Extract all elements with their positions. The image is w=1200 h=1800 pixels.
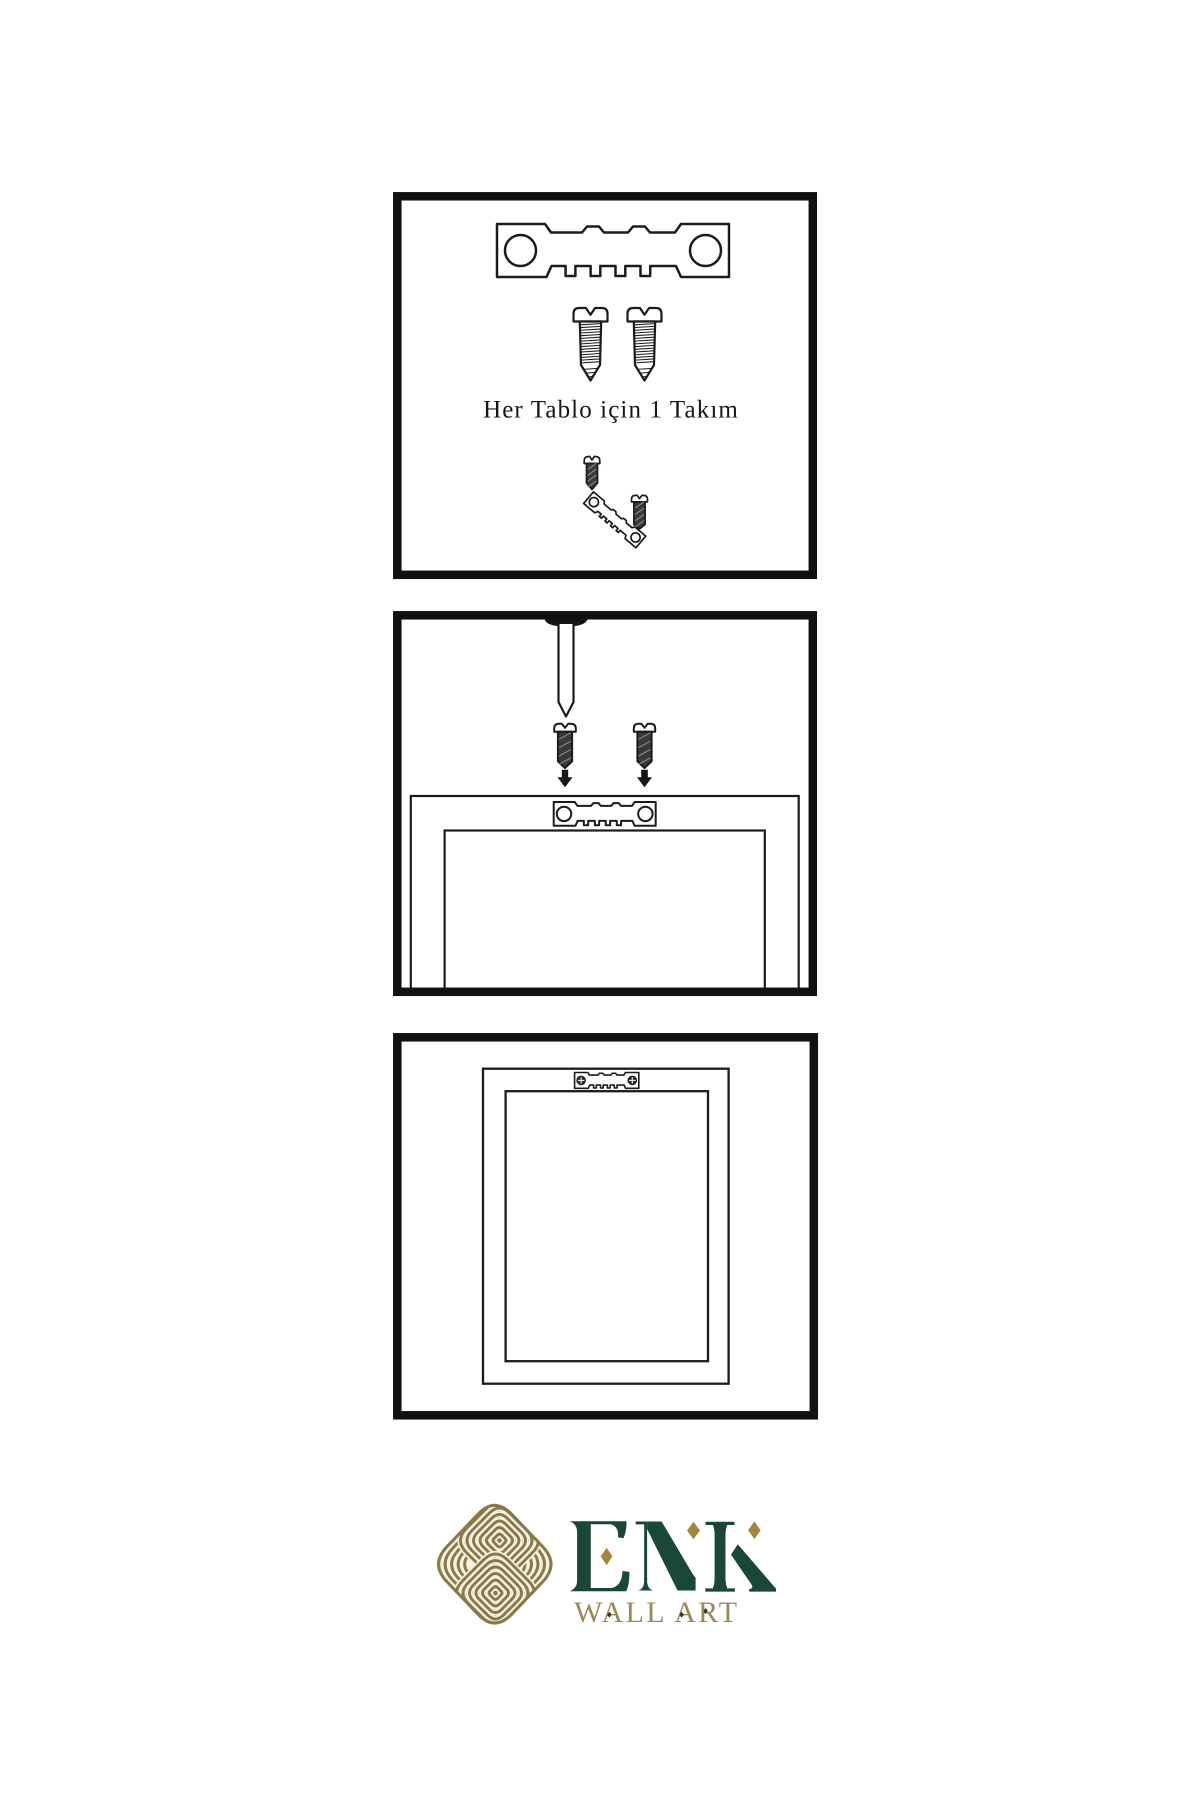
svg-text:WALL ART: WALL ART (574, 1596, 739, 1629)
svg-text:Her Tablo için 1 Takım: Her Tablo için 1 Takım (483, 397, 739, 424)
